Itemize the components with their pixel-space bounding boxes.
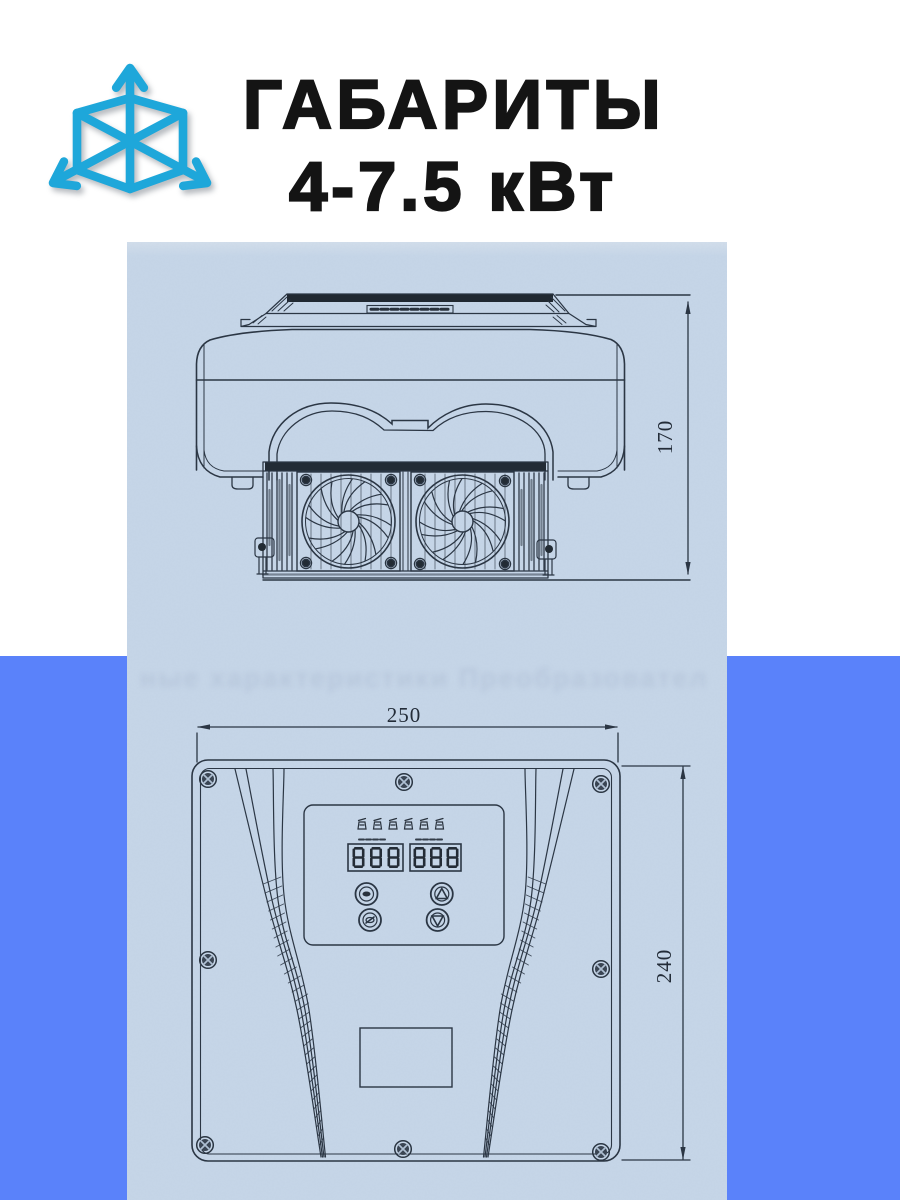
svg-text:250: 250: [387, 703, 422, 727]
svg-text:240: 240: [652, 949, 676, 984]
svg-text:170: 170: [653, 420, 677, 455]
